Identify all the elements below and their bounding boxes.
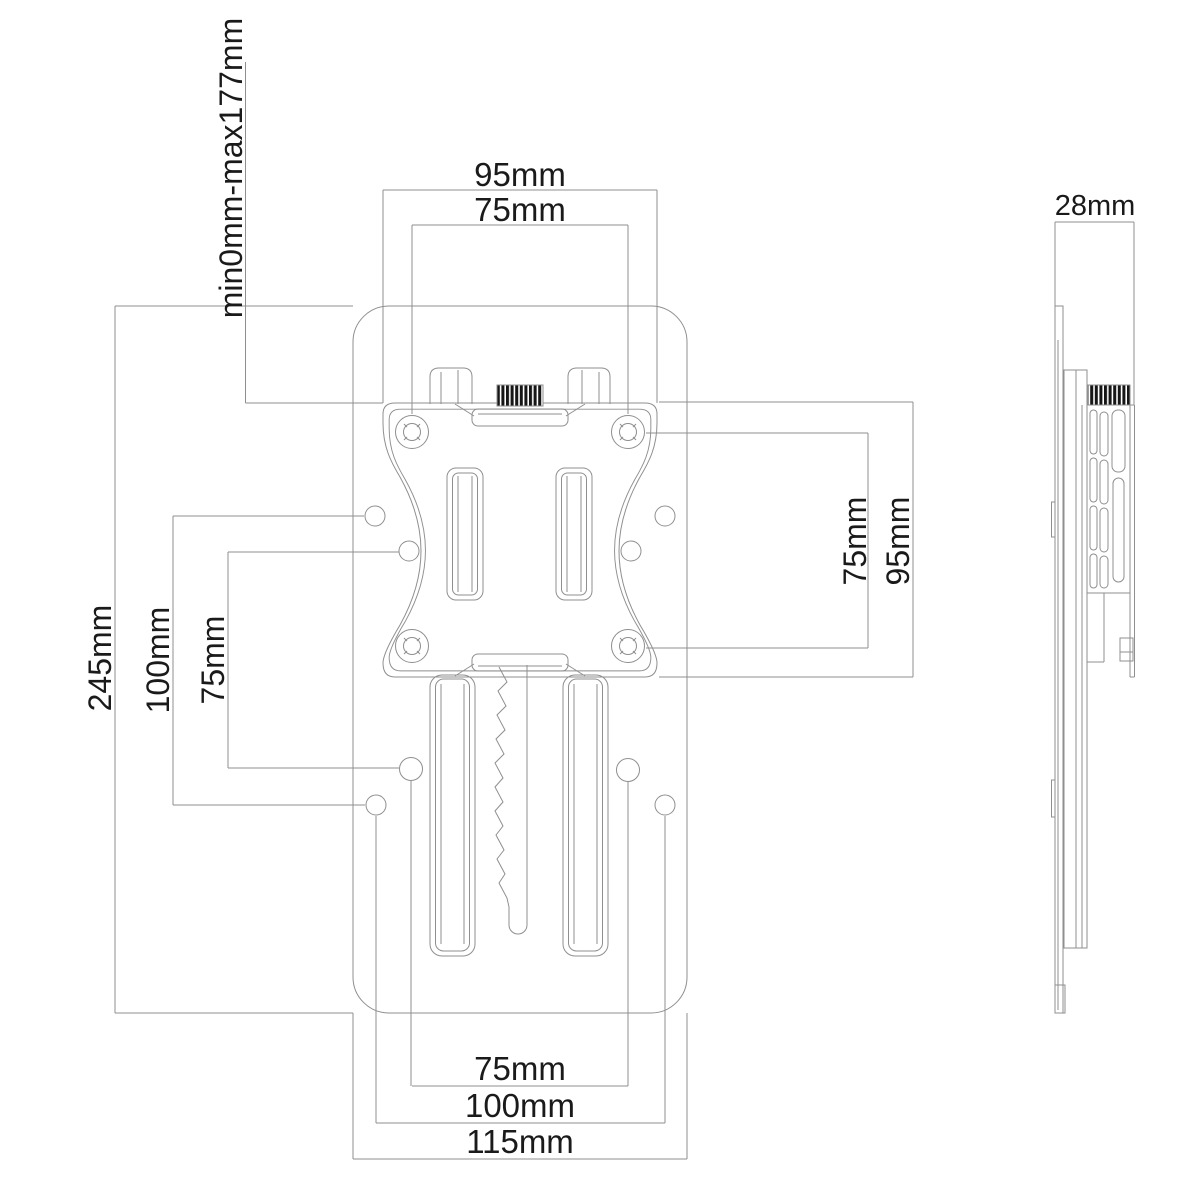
technical-drawing-page: 95mm 75mm min0mm-max177mm 245mm 100mm 75… xyxy=(0,0,1200,1200)
front-view xyxy=(353,306,687,1013)
ratchet-track xyxy=(495,665,527,934)
vesa-screw-holes xyxy=(396,416,645,663)
vesa-adapter-drawing: 95mm 75mm min0mm-max177mm 245mm 100mm 75… xyxy=(0,0,1200,1200)
dim-label-side-depth: 28mm xyxy=(1055,190,1136,222)
vesa-plate-outline xyxy=(383,403,657,677)
bottom-clamp-bar xyxy=(455,654,585,676)
side-slider-lines xyxy=(1076,370,1082,948)
side-view xyxy=(1052,306,1135,1013)
dim-label-top-outer: 95mm xyxy=(474,156,566,193)
plate-hole xyxy=(655,506,675,526)
plate-hole-inner xyxy=(400,758,423,781)
dim-label-top-inner: 75mm xyxy=(474,191,566,228)
side-bump xyxy=(1052,502,1056,537)
dim-right-75 xyxy=(646,433,868,648)
plate-hole xyxy=(366,795,386,815)
dim-travel-range xyxy=(246,62,384,403)
vesa-plate xyxy=(383,368,657,677)
dim-label-travel-range: min0mm-max177mm xyxy=(213,18,249,318)
dim-side-28 xyxy=(1055,222,1134,405)
plate-hole-inner xyxy=(617,759,640,782)
dim-label-left-inner: 75mm xyxy=(195,616,231,705)
dimension-labels: 95mm 75mm min0mm-max177mm 245mm 100mm 75… xyxy=(82,18,1135,1160)
dim-label-right-outer: 95mm xyxy=(880,497,916,586)
dim-label-bottom-inner: 75mm xyxy=(474,1050,566,1087)
side-back-plate xyxy=(1055,306,1063,1013)
side-lower-bracket xyxy=(1087,593,1133,662)
dim-right-95 xyxy=(659,402,913,677)
top-clamp-bar xyxy=(455,404,585,426)
dim-label-right-inner: 75mm xyxy=(837,497,873,586)
thumbscrew-knob-side xyxy=(1088,385,1130,405)
side-front-face xyxy=(1130,405,1135,677)
side-notch xyxy=(399,541,419,561)
vesa-plate-inner-contour xyxy=(389,409,651,671)
plate-hole xyxy=(655,795,675,815)
dim-label-bottom-mid: 100mm xyxy=(465,1087,575,1124)
side-slot-block xyxy=(1087,405,1130,593)
side-notch xyxy=(621,541,641,561)
slider-rails xyxy=(430,675,608,956)
plate-hole xyxy=(365,506,385,526)
thumbscrew-knob-front xyxy=(497,385,543,406)
dimension-lines xyxy=(115,62,1134,1159)
dim-label-bottom-outer: 115mm xyxy=(466,1123,574,1160)
dim-label-left-outer: 245mm xyxy=(82,605,118,712)
dim-label-left-mid: 100mm xyxy=(140,607,176,714)
dim-left-75 xyxy=(228,552,399,768)
vesa-slots xyxy=(447,468,592,600)
side-bump xyxy=(1052,780,1056,817)
